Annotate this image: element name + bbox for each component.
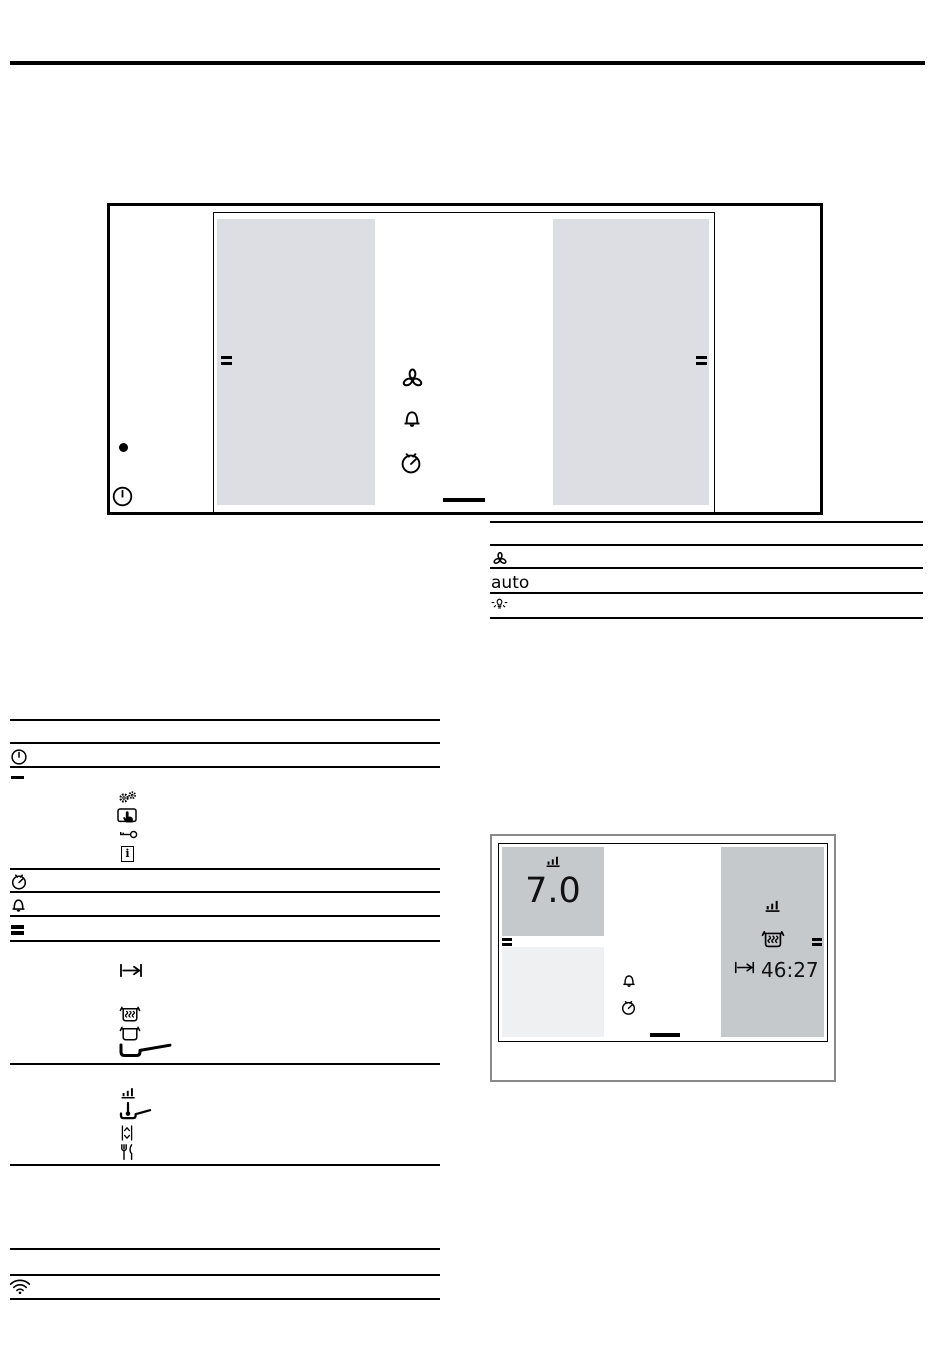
left-table-line <box>10 940 440 942</box>
left-table-line <box>10 742 440 744</box>
gears-icon <box>118 789 138 804</box>
keep-warm-pot-icon <box>761 927 785 949</box>
right-zone-handle-icon <box>696 356 707 365</box>
frying-sensor-icon <box>119 1101 152 1121</box>
timer-icon <box>10 871 28 891</box>
left-table-line <box>10 1248 440 1250</box>
info-icon: i <box>121 846 134 862</box>
left-table-line <box>10 915 440 917</box>
power-icon <box>111 485 134 508</box>
gourmet-icon <box>120 1143 134 1161</box>
timer-icon <box>399 449 423 475</box>
pot-icon <box>119 1024 141 1042</box>
power-level-bars-icon <box>121 1086 136 1099</box>
goto-end-icon <box>119 962 143 979</box>
left-table-line <box>10 766 440 768</box>
left-table-line <box>10 1274 440 1276</box>
home-dash <box>443 498 485 502</box>
fan-icon <box>401 367 424 391</box>
timer-icon <box>620 998 637 1016</box>
equals-icon <box>11 925 24 935</box>
alarm-bell-icon <box>400 407 424 431</box>
alarm-bell-icon <box>620 972 638 990</box>
up-down-icon <box>121 1124 133 1142</box>
touch-demo-icon <box>117 808 139 825</box>
dash-icon <box>11 776 24 779</box>
key-icon <box>118 829 138 840</box>
overview-left-zone-panel <box>217 219 375 505</box>
left-table-line <box>10 719 440 721</box>
left-table-line <box>10 868 440 870</box>
symbols-table-line <box>490 592 923 594</box>
left-zone-handle-icon <box>502 938 512 946</box>
right-zone-handle-icon <box>812 938 822 946</box>
symbols-table-line <box>490 521 923 523</box>
overview-right-zone-panel <box>553 219 709 505</box>
power-level-bars-icon <box>765 898 781 913</box>
top-rule <box>10 61 925 65</box>
wifi-icon <box>8 1276 32 1295</box>
example-left-zone-idle-panel <box>502 947 604 1037</box>
light-icon <box>491 596 508 613</box>
fan-icon <box>492 551 508 567</box>
standby-dot <box>119 443 128 452</box>
power-icon <box>10 748 28 766</box>
symbols-table-line <box>490 617 923 619</box>
left-zone-handle-icon <box>221 356 232 365</box>
left-table-line <box>10 891 440 893</box>
alarm-bell-icon <box>9 896 28 915</box>
pan-icon <box>119 1041 172 1058</box>
keep-warm-pot-icon <box>119 1003 141 1023</box>
auto-label: auto <box>491 573 529 593</box>
power-level-value: 7.0 <box>502 871 604 911</box>
home-dash <box>650 1033 680 1037</box>
manual-page: auto <box>0 0 950 1369</box>
goto-end-icon <box>734 959 755 976</box>
power-level-bars-icon <box>546 854 561 868</box>
symbols-table-line <box>490 544 923 546</box>
left-table-line <box>10 1164 440 1166</box>
timer-remaining-value: 46:27 <box>761 958 819 982</box>
left-table-line <box>10 1298 440 1300</box>
symbols-table-line <box>490 567 923 569</box>
left-table-line <box>10 1063 440 1065</box>
